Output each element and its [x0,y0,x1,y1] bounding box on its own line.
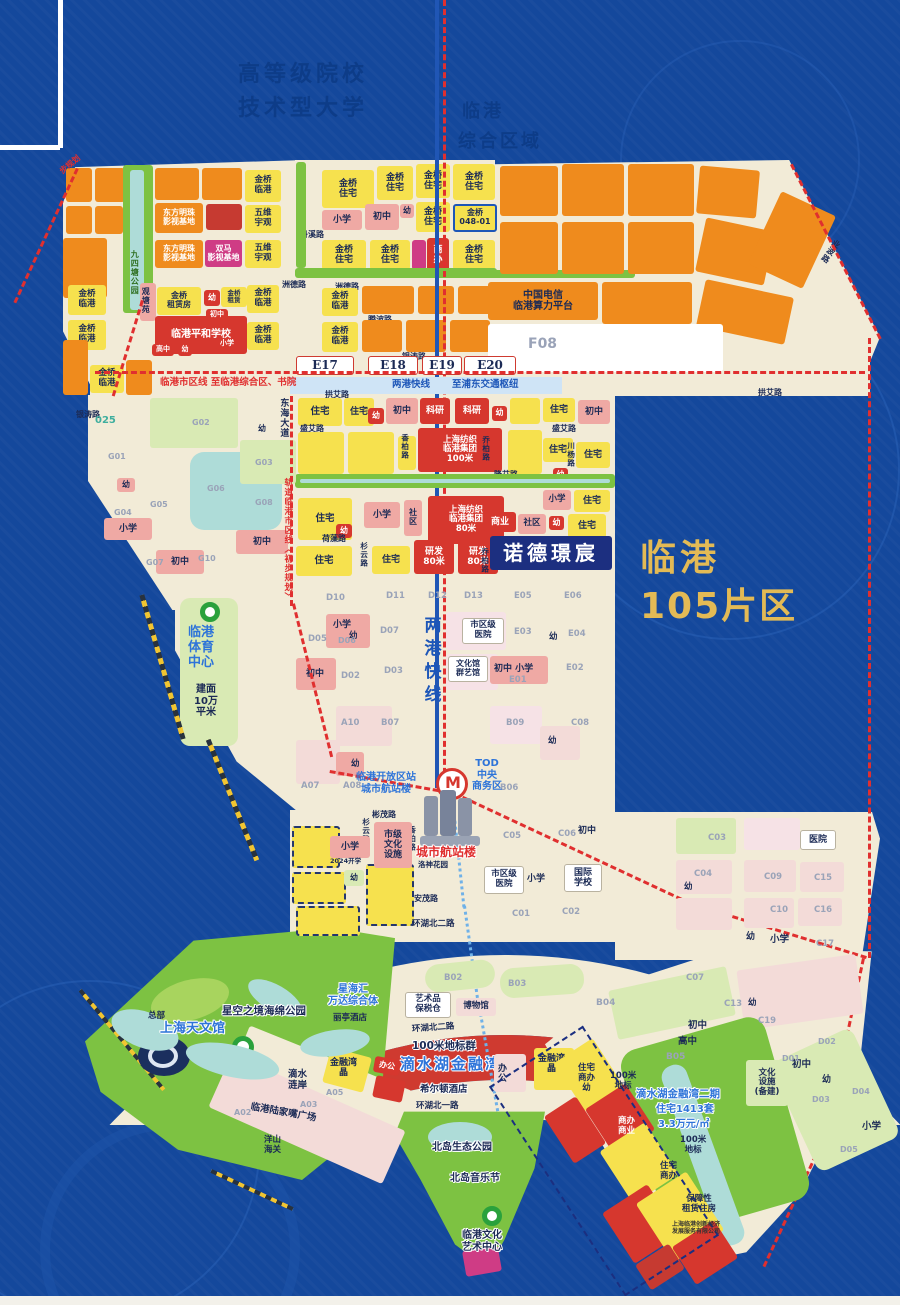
customs-label: 洋山 海关 [264,1136,281,1156]
road-label: 乔柏路 [480,548,489,574]
boundary-red-dash [868,338,871,958]
map-label: 丽亭酒店 [333,1014,367,1024]
map-label: 100米 地标 [680,1136,706,1156]
plot-code: D03 [384,667,403,677]
plot-code: E01 [509,676,527,686]
road-label: 乔柏路 [481,436,490,462]
bg-faint-label: 临港 [462,102,504,123]
road-label: 环湖北一路 [416,1102,459,1112]
map-title-line2: 105片区 [640,586,797,627]
map-shape [95,168,125,202]
bottom-frame [0,1296,900,1305]
map-label: 幼 [746,932,755,942]
code: A05 [326,1088,343,1097]
plot-code: B06 [500,784,518,794]
plot-code: A10 [341,719,359,729]
map-label: 幼 [684,883,693,893]
plot-code: C15 [814,874,832,884]
plot-code: D02 [341,672,360,682]
plot-048-01: 金桥 048-01 [453,204,497,232]
plot-code: E04 [568,630,586,640]
bg-faint-label: 高等级院校 [238,62,368,87]
plot-code: D05 [308,635,327,645]
map-label: 金桥 临港 [322,322,358,352]
map-label: 保障性 租赁住房 [682,1195,716,1215]
map-shape [362,286,414,314]
plot-code: B07 [381,719,399,729]
map-label: 幼 [549,516,564,530]
plot-dashed [292,872,346,904]
map-shape [628,222,694,274]
map-shape [676,898,732,930]
plot-code: C10 [770,906,788,916]
plot-code: D07 [380,627,399,637]
plot-code: D10 [326,594,345,604]
road-label: 彬茂路 [372,810,396,819]
plot-code: C17 [816,940,834,950]
telecom-parcel: 中国电信 临港算力平台 [488,282,598,320]
map-shape [562,222,624,274]
plot-code: E06 [564,592,582,602]
map-label: 幼 [822,1075,831,1085]
map-shape [95,206,123,234]
plot-code: G03 [255,458,273,467]
map-label: 科研 [420,398,450,424]
map-label: 金桥 临港 [247,285,279,313]
wanda-label: 星海汇 万达综合体 [328,984,378,1007]
map-label: 小学 [527,874,545,884]
map-label: 东方明珠 影视基地 [155,240,203,268]
map-label: 小学 [862,1122,881,1133]
map-label: 100米 地标 [610,1072,636,1092]
lingang-105-district-map: 高等级院校技术型大学临港综合区域金桥 临港东方明珠 影视基地五维 宇观东方明珠 … [0,0,900,1305]
map-label: 金桥 临港 [245,170,281,202]
plot-code: D06 [338,636,356,645]
map-label: 住宅 [298,398,342,426]
map-label: 东方明珠 影视基地 [155,203,203,233]
map-label: 社 区 [404,500,422,536]
map-label: 幼 [117,478,135,492]
map-shape [500,166,558,216]
frame-line [58,0,63,148]
phase2-label: 住宅1413套 [656,1104,714,1116]
plot-code: G02 [192,418,210,427]
map-shape [406,320,446,352]
plot-code: B03 [508,980,526,990]
plot-dashed [296,906,360,936]
nord-banner: 诺德璟宸 [490,536,612,570]
map-label: 金桥 租赁 [221,287,247,307]
sponge-park-label: 星空之境海绵公园 [222,1005,306,1017]
map-label: 小学 [364,502,400,528]
plot-code: D02 [818,1037,836,1046]
map-shape [696,165,760,218]
plot-code: G06 [207,484,225,493]
culture-hall-box: 文化馆 群艺馆 [448,656,488,682]
map-label: 金桥 租赁房 [157,287,201,315]
plot-code: D04 [852,1087,870,1096]
map-label: 上海临港创新经济 发展服务有限公司 [672,1222,720,1236]
map-label: 住宅 [574,490,610,512]
map-shape [296,162,306,268]
map-label: 幼 [204,290,220,306]
map-shape [126,360,152,395]
plot-code: C03 [708,834,726,844]
map-shape [362,320,402,352]
map-shape [508,430,542,474]
hospital-box: 医院 [800,830,836,850]
map-label: 小学 [322,210,362,230]
map-label: 住宅 [372,546,410,574]
landmark-cluster-label: 100米地标群 [412,1040,476,1052]
map-label: 幼 [344,870,364,886]
map-label: 初中 [578,400,610,424]
map-label: 金桥 住宅 [322,240,366,270]
map-label: 社区 [518,514,546,534]
map-label: 幼 [368,408,384,424]
road-label: 安茂路 [414,894,438,903]
plot-code: B04 [596,998,615,1008]
code: A03 [300,1100,317,1109]
express-line-label: 两港快线 [392,380,430,391]
map-label: 金桥 住宅 [377,166,413,200]
map-label: 初中 [206,309,228,321]
plot-code: D11 [386,592,405,602]
art-center-label: 临港文化 艺术中心 [462,1230,502,1253]
road-label: 东海大道 [278,398,288,438]
road-label: 环湖北二路 [412,920,455,930]
plot-code: G07 [146,558,164,567]
map-label: 金桥 住宅 [453,164,495,200]
map-label: 幼 [400,204,414,218]
lakefront-label: 滴水 涟岸 [288,1070,307,1092]
map-label: 幼 [492,406,507,421]
map-shape [628,164,694,216]
terminal-tower [458,798,472,836]
music-fest-label: 北岛音乐节 [450,1173,500,1185]
map-label: 金桥 住宅 [322,170,374,208]
map-label: 小学 [543,490,571,510]
map-shape [206,204,242,230]
district-hospital-box: 市区级 医院 [462,618,504,644]
finance-bay-label: 滴水湖金融湾 [400,1056,502,1073]
plot-code: C02 [562,908,580,918]
plot-code: C07 [686,974,704,984]
plot-code: C04 [694,870,712,880]
station-open-area-label: 临港开放区站 城市航站楼 [356,772,416,795]
express-line-vertical: 两港快线 [420,616,440,708]
map-label: 幼 [178,344,192,356]
plot-code: C19 [758,1017,776,1027]
map-shape [202,168,242,200]
plot-code: B02 [444,974,462,984]
plot-code: A07 [301,782,319,792]
art-bonded-box: 艺术品 保税仓 [405,992,451,1018]
map-label: 洛神花园 [418,861,448,870]
phase2-label: 滴水湖金融湾二期 [636,1088,720,1100]
map-label: 高中 [678,1037,697,1048]
map-label: 初中 [386,398,418,424]
express-line-label: 至浦东交通枢纽 [452,380,519,391]
map-shape [500,222,558,274]
museum-box: 博物馆 [456,998,496,1016]
map-shape [562,164,624,216]
map-label: 五维 宇观 [245,240,281,268]
plot-code: G01 [108,452,126,461]
road-label: 盛艾路 [552,424,576,433]
plot-code: C01 [512,910,530,920]
district-hospital-box: 市区级 医院 [484,866,524,894]
map-label: 幼 [258,424,266,433]
road-label: 杉云路 [359,542,368,568]
map-label: 2024开学 [330,858,361,865]
map-label: 小学 [333,620,351,630]
plot-code: D12 [428,592,447,602]
plot-code: G10 [198,554,216,563]
map-shape [155,168,199,200]
map-shape [450,320,490,352]
plot-code: B05 [666,1052,685,1062]
road-label: 川杨路 [566,442,575,468]
plot-code: G08 [255,498,273,507]
road-label: 香柏路 [400,434,409,460]
map-label: 幼 [748,999,757,1009]
map-shape [540,726,580,760]
map-shape [676,818,736,854]
map-shape [412,240,426,270]
plot-code: D01 [782,1054,800,1063]
plot-code: C13 [724,1000,742,1010]
plot-code: B09 [506,719,524,729]
plot-code: E05 [514,592,532,602]
map-label: 住宅 商办 [660,1162,677,1182]
plot-code: D13 [464,592,483,602]
planetarium-label: 上海天文馆 [160,1022,225,1037]
map-shape [298,432,344,474]
map-label: 小学 [330,836,370,858]
terminal-tower [424,796,438,836]
plot-code: C06 [558,830,576,840]
plot-code: C16 [814,906,832,916]
map-label: 初中 [688,1021,707,1032]
map-label: 建面 10万 平米 [194,684,218,719]
plot-dashed [366,864,414,926]
boundary-red-dash [290,396,293,606]
plot-F08 [488,324,723,372]
map-shape [66,206,92,234]
intl-school-box: 国际 学校 [564,864,602,892]
map-label: 小学 [216,338,238,350]
city-culture-box: 市级 文化 设施 [374,822,412,868]
map-label: 025 [95,415,116,427]
road-label: 荷藻路 [322,534,346,543]
map-label: 双马 影视基地 [205,240,242,267]
map-label: 金桥 临港 [68,285,106,315]
map-label: 初中 [578,826,596,836]
map-label: 高中 [152,344,174,356]
map-label: 幼 [548,737,557,747]
map-label: 科研 [455,398,489,424]
map-label: 研发 80米 [414,540,454,574]
road-label: 洲德路 [282,280,306,289]
plot-code: C09 [764,873,782,883]
map-label: 商业 [484,512,516,532]
map-label: 金融湾 晶 [330,1058,357,1079]
map-label: 住宅 商办 幼 [578,1064,595,1093]
plot-code: C08 [571,719,589,729]
phase2-label: 3.3万元/㎡ [658,1119,709,1131]
map-label: 住宅 [543,398,575,422]
map-label: 住宅 [296,546,352,576]
map-label: 初中 小学 [494,664,533,674]
map-shape [300,479,610,483]
plot-code: D03 [812,1095,830,1104]
sports-center-label: 临港 体育 中心 [188,626,214,671]
plot-code: G05 [150,500,168,509]
map-shape [63,340,88,395]
map-shape [602,282,692,324]
map-label: 小学 [104,518,152,540]
air-terminal-label: 城市航站楼 [416,846,476,860]
sports-center-marker [200,602,220,622]
plot-code: E03 [514,628,532,638]
bg-faint-label: 综合区域 [458,132,542,153]
terminal-tower [440,790,456,836]
north-island-park-label: 北岛生态公园 [432,1142,492,1154]
map-label: 金桥 临港 [247,322,279,350]
map-shape [348,432,394,474]
map-label: 金桥 住宅 [453,240,495,270]
tod-label: TOD 中央 商务区 [472,758,502,793]
map-label: 幼 [351,760,360,770]
map-label: 幼 [549,633,558,643]
map-label: 住宅 [568,514,606,538]
plot-code: D05 [840,1145,858,1154]
road-label: 拱艾路 [758,388,782,397]
map-label: 小学 [770,935,789,946]
art-center-marker [482,1206,502,1226]
metro-city-line-label: 临港市区线 至临港综合区、书院 [160,378,296,389]
map-label: 金桥 临港 [322,288,358,316]
map-title-line1: 临港 [640,538,720,579]
park-label: 九四塘公园 [130,250,139,295]
map-label: 初中 [236,530,288,554]
map-shape [296,740,340,784]
plot-code: F08 [528,336,557,352]
bg-faint-label: 技术型大学 [238,96,368,121]
map-label: 金桥 住宅 [370,240,410,270]
map-shape [95,371,865,374]
plot-code: G04 [114,508,132,517]
map-label: 商办 商业 [618,1117,635,1137]
map-shape [295,268,497,278]
map-shape [744,818,800,850]
culture-facility-box: 文化 设施 (备建) [746,1060,788,1106]
plot-code: C05 [503,832,521,842]
map-label: 初中 [365,204,399,230]
hotel-label: 希尔顿酒店 [420,1085,468,1096]
plot-code: E02 [566,664,584,674]
frame-line [0,145,60,150]
map-label: 住宅 [576,442,610,468]
map-shape [510,398,540,424]
map-label: 五维 宇观 [245,205,281,233]
